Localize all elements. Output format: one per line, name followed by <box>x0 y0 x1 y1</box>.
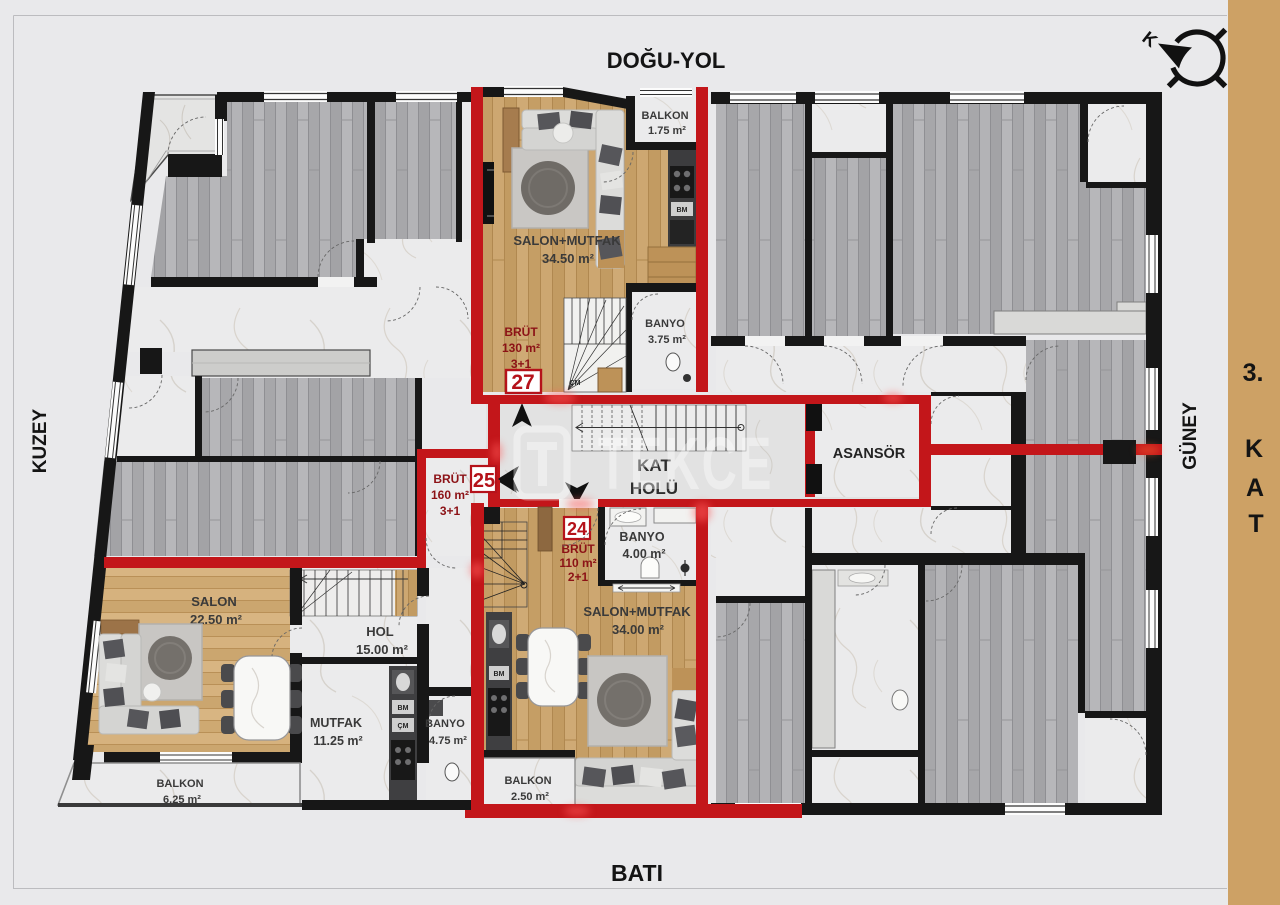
svg-text:BATI: BATI <box>611 860 663 886</box>
svg-text:130 m²: 130 m² <box>502 341 540 355</box>
svg-text:25: 25 <box>473 470 495 492</box>
svg-text:BRÜT: BRÜT <box>433 471 467 486</box>
svg-text:ÇM: ÇM <box>398 723 409 730</box>
svg-text:BRÜT: BRÜT <box>504 324 538 339</box>
svg-text:BM: BM <box>677 207 688 214</box>
svg-text:SALON+MUTFAK: SALON+MUTFAK <box>583 604 691 619</box>
svg-text:BANYO: BANYO <box>619 530 664 544</box>
svg-text:34.00 m²: 34.00 m² <box>612 622 665 637</box>
svg-text:2+1: 2+1 <box>568 570 589 584</box>
svg-text:SALON: SALON <box>191 594 237 609</box>
svg-text:ÇM: ÇM <box>570 380 581 387</box>
svg-text:A: A <box>1246 474 1264 502</box>
svg-text:GÜNEY: GÜNEY <box>1180 402 1201 470</box>
svg-text:27: 27 <box>511 371 534 394</box>
svg-text:BANYO: BANYO <box>645 318 685 330</box>
svg-text:3.: 3. <box>1243 359 1264 387</box>
svg-text:KUZEY: KUZEY <box>30 408 51 473</box>
svg-text:BALKON: BALKON <box>504 775 551 787</box>
svg-text:BALKON: BALKON <box>641 110 688 122</box>
svg-text:T: T <box>1248 510 1263 538</box>
svg-text:1.75 m²: 1.75 m² <box>648 125 686 137</box>
svg-text:110 m²: 110 m² <box>559 556 596 570</box>
svg-text:4.75 m²: 4.75 m² <box>429 735 467 747</box>
svg-text:11.25 m²: 11.25 m² <box>313 734 362 748</box>
svg-text:BANYO: BANYO <box>425 718 465 730</box>
svg-text:MUTFAK: MUTFAK <box>310 716 362 730</box>
svg-text:SALON+MUTFAK: SALON+MUTFAK <box>513 233 621 248</box>
svg-text:2.50 m²: 2.50 m² <box>511 791 549 803</box>
svg-text:ASANSÖR: ASANSÖR <box>833 445 906 462</box>
svg-text:3+1: 3+1 <box>440 504 461 518</box>
svg-text:24: 24 <box>567 519 587 539</box>
svg-text:15.00 m²: 15.00 m² <box>356 642 409 657</box>
svg-text:BRÜT: BRÜT <box>561 541 595 556</box>
svg-text:TEKCE: TEKCE <box>598 423 773 506</box>
svg-text:34.50 m²: 34.50 m² <box>542 251 595 266</box>
svg-text:DOĞU-YOL: DOĞU-YOL <box>607 48 726 73</box>
svg-text:4.00 m²: 4.00 m² <box>622 547 665 561</box>
svg-text:BM: BM <box>398 705 409 712</box>
svg-text:BM: BM <box>494 671 505 678</box>
svg-text:160 m²: 160 m² <box>431 488 469 502</box>
svg-text:BALKON: BALKON <box>156 778 203 790</box>
svg-text:K: K <box>1245 435 1263 463</box>
svg-text:HOL: HOL <box>366 624 394 639</box>
svg-text:3.75 m²: 3.75 m² <box>648 334 686 346</box>
